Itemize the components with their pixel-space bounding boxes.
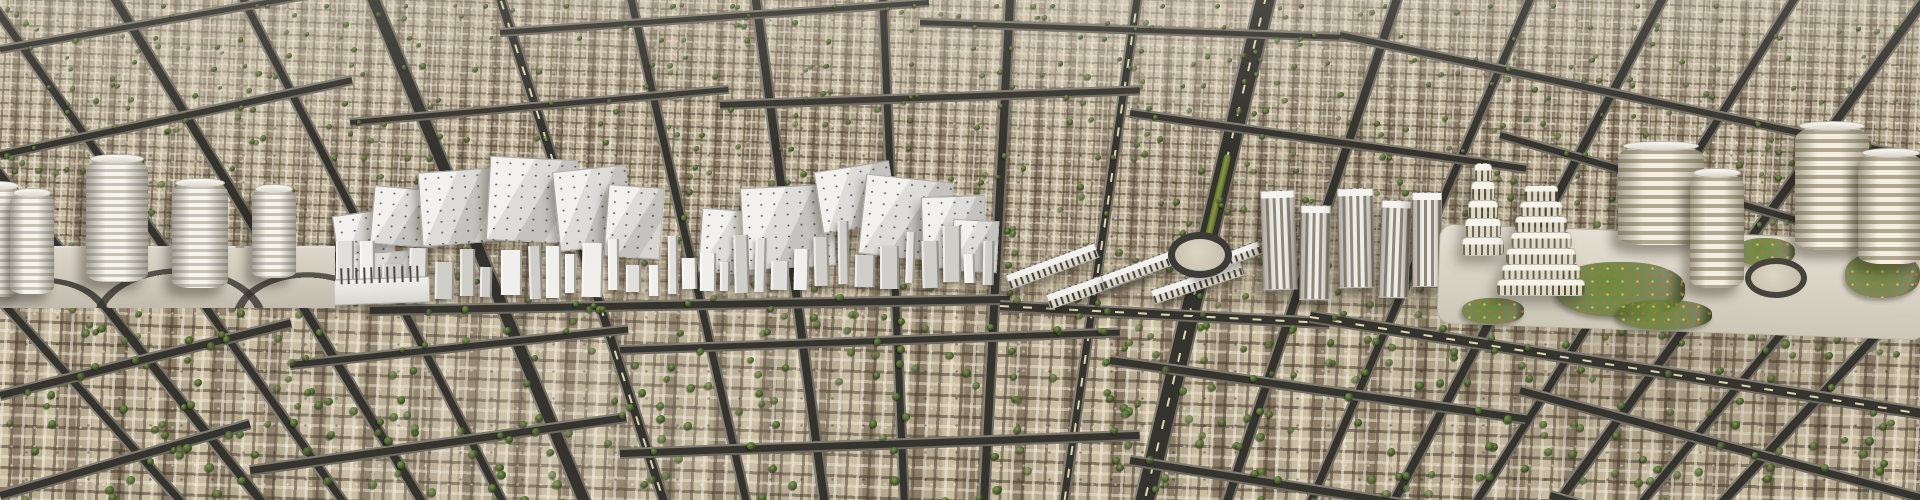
street-tree	[1506, 67, 1510, 71]
fabric-tree	[1790, 352, 1796, 358]
fabric-tree	[1292, 64, 1297, 69]
fabric-tree	[369, 138, 374, 143]
fabric-tree	[1774, 34, 1778, 38]
fabric-tree	[687, 384, 695, 392]
fabric-tree	[1541, 432, 1547, 438]
fabric-tree	[675, 455, 682, 462]
street-tree	[1002, 153, 1007, 158]
street-tree	[536, 414, 544, 422]
street-tree	[238, 310, 245, 317]
fabric-tree	[1533, 87, 1538, 92]
fabric-tree	[1375, 191, 1380, 196]
fabric-tree	[1667, 110, 1672, 115]
street-tree	[1828, 384, 1835, 391]
tower-slab-striped	[1260, 189, 1297, 290]
fabric-tree	[1150, 25, 1154, 29]
street-tree	[893, 393, 899, 399]
street-tree	[496, 464, 503, 471]
fabric-tree	[255, 4, 259, 8]
street-tree	[1881, 460, 1888, 467]
fabric-tree	[1036, 16, 1040, 20]
fabric-tree	[1410, 60, 1414, 64]
fabric-tree	[159, 421, 166, 428]
mall-fin	[922, 241, 940, 288]
fabric-tree	[1206, 54, 1210, 58]
mall-fin	[565, 254, 576, 293]
street-tree	[473, 67, 478, 72]
fabric-tree	[417, 43, 421, 47]
fabric-tree	[1208, 384, 1216, 392]
ziggurat-step	[1511, 232, 1572, 249]
street-tree	[92, 363, 99, 370]
street-tree	[1009, 348, 1016, 355]
fabric-tree	[1104, 389, 1111, 396]
street-tree	[13, 169, 18, 174]
street-tree	[1680, 60, 1685, 65]
street-tree	[1489, 4, 1493, 8]
mall-fin	[964, 254, 976, 283]
fabric-tree	[1079, 194, 1085, 200]
fabric-tree	[305, 389, 312, 396]
fabric-tree	[122, 337, 128, 343]
fabric-tree	[619, 412, 626, 419]
fabric-tree	[24, 21, 29, 26]
fabric-tree	[1265, 341, 1273, 349]
fabric-tree	[836, 294, 843, 301]
fabric-tree	[426, 309, 432, 315]
street-tree	[398, 396, 405, 403]
fabric-tree	[94, 98, 99, 103]
street-tree	[532, 355, 538, 361]
mall-fin	[720, 262, 730, 291]
fabric-tree	[389, 371, 397, 379]
fabric-tree	[286, 376, 292, 382]
fabric-tree	[847, 120, 851, 124]
mall-fin	[681, 258, 697, 289]
street-tree	[1140, 49, 1144, 53]
street-tree	[1866, 437, 1874, 445]
street-tree	[913, 4, 916, 7]
fabric-tree	[1490, 82, 1494, 86]
street-tree	[901, 284, 906, 289]
fabric-tree	[1162, 474, 1169, 481]
street-tree	[565, 4, 568, 7]
street-tree	[1375, 121, 1380, 126]
fabric-tree	[1236, 108, 1241, 113]
fabric-tree	[694, 146, 698, 150]
fabric-tree	[1050, 374, 1058, 382]
mall-fin	[501, 250, 522, 295]
fabric-tree	[357, 120, 361, 124]
fabric-tree	[1241, 206, 1247, 212]
fabric-tree	[113, 124, 118, 129]
fabric-tree	[1275, 38, 1280, 43]
fabric-tree	[65, 167, 70, 172]
fabric-tree	[1244, 414, 1251, 421]
street-tree	[1613, 432, 1620, 439]
street-tree	[898, 318, 905, 325]
street-tree	[870, 420, 877, 427]
fabric-tree	[983, 172, 988, 177]
fabric-tree	[1416, 382, 1424, 390]
street-tree	[651, 448, 658, 455]
fabric-tree	[1511, 178, 1517, 184]
street-tree	[768, 306, 774, 312]
ziggurat-step	[1465, 218, 1501, 237]
fabric-tree	[736, 5, 740, 9]
street-tree	[1095, 300, 1101, 306]
fabric-tree	[149, 210, 154, 215]
fabric-tree	[1492, 128, 1497, 133]
street-tree	[794, 113, 798, 117]
fabric-tree	[36, 168, 41, 173]
fabric-tree	[183, 444, 192, 453]
fabric-tree	[900, 10, 904, 14]
fabric-tree	[183, 118, 189, 124]
fabric-tree	[1145, 132, 1150, 137]
fabric-tree	[1275, 81, 1280, 86]
fabric-tree	[15, 12, 19, 16]
fabric-tree	[1202, 83, 1206, 87]
fabric-tree	[1135, 400, 1141, 406]
fabric-tree	[1009, 46, 1014, 51]
fabric-tree	[420, 63, 425, 68]
fabric-tree	[1365, 336, 1372, 343]
street-tree	[1336, 289, 1342, 295]
street-tree	[1787, 56, 1791, 60]
street-tree	[1328, 339, 1334, 345]
fabric-tree	[1085, 74, 1090, 79]
fabric-tree	[1118, 57, 1122, 61]
fabric-tree	[1447, 146, 1451, 150]
street-tree	[397, 461, 405, 469]
mall-fin	[793, 249, 809, 290]
tower-roof-cap	[13, 188, 52, 198]
fabric-tree	[1373, 338, 1380, 345]
fabric-tree	[352, 47, 357, 52]
fabric-tree	[1667, 409, 1673, 415]
fabric-tree	[1325, 359, 1333, 367]
mall-fin	[700, 252, 716, 290]
street-tree	[325, 4, 329, 8]
fabric-tree	[1236, 443, 1243, 450]
fabric-tree	[623, 25, 628, 30]
fabric-tree	[1367, 301, 1374, 308]
fabric-tree	[504, 327, 511, 334]
fabric-tree	[1756, 122, 1760, 126]
fabric-tree	[872, 351, 879, 358]
fabric-tree	[1254, 72, 1259, 77]
fabric-tree	[1456, 71, 1460, 75]
fabric-tree	[469, 450, 477, 458]
fabric-tree	[1862, 55, 1866, 59]
street-tree	[1547, 96, 1551, 100]
fabric-tree	[1031, 4, 1036, 9]
street-tree	[897, 346, 904, 353]
fabric-tree	[1455, 10, 1460, 15]
fabric-tree	[156, 44, 161, 49]
street-tree	[979, 180, 984, 185]
fabric-tree	[1104, 308, 1111, 315]
fabric-tree	[1241, 53, 1246, 58]
tower-cylindrical-white	[252, 188, 296, 278]
mall-fin	[943, 226, 961, 282]
fabric-tree	[1370, 10, 1375, 15]
ziggurat-step	[1468, 200, 1498, 219]
street-tree	[564, 328, 570, 334]
fabric-tree	[350, 407, 358, 415]
street-tree	[1312, 33, 1316, 37]
fabric-tree	[219, 331, 225, 337]
fabric-tree	[1352, 376, 1359, 383]
mall-fin	[582, 243, 604, 297]
mall-fin	[649, 265, 660, 296]
fabric-tree	[781, 313, 787, 319]
street-tree	[687, 189, 693, 195]
fabric-tree	[1504, 415, 1512, 423]
fabric-tree	[187, 46, 190, 49]
street-tree	[106, 486, 114, 494]
fabric-tree	[658, 435, 665, 442]
mall-fin	[733, 235, 749, 294]
fabric-tree	[902, 413, 910, 421]
fabric-tree	[1368, 475, 1377, 484]
street-tree	[657, 415, 664, 422]
fabric-tree	[71, 86, 76, 91]
tower-roof-cap	[1862, 148, 1920, 158]
fabric-tree	[129, 97, 134, 102]
mall-fin	[770, 261, 789, 291]
fabric-tree	[882, 314, 888, 320]
street-tree	[1618, 402, 1625, 409]
fabric-tree	[1258, 496, 1265, 500]
street-tree	[1388, 448, 1395, 455]
street-tree	[991, 453, 998, 460]
street-tree	[908, 118, 913, 123]
fabric-tree	[1415, 311, 1422, 318]
fabric-tree	[1651, 42, 1655, 46]
fabric-tree	[1640, 456, 1647, 463]
street-tree	[891, 477, 899, 485]
street-tree	[1475, 407, 1482, 414]
fabric-tree	[1476, 474, 1484, 482]
fabric-tree	[1011, 85, 1015, 89]
fabric-tree	[1228, 58, 1232, 62]
street-tree	[1355, 419, 1361, 425]
fabric-tree	[682, 38, 686, 42]
street-tree	[290, 419, 297, 426]
fabric-tree	[127, 476, 135, 484]
fabric-tree	[599, 121, 604, 126]
tower-cylindrical-cream	[1690, 172, 1744, 288]
fabric-tree	[1012, 250, 1018, 256]
fabric-tree	[874, 338, 881, 345]
fabric-tree	[814, 321, 821, 328]
street-tree	[1096, 155, 1101, 160]
fabric-tree	[605, 440, 612, 447]
street-tree	[1008, 290, 1013, 295]
fabric-tree	[136, 311, 142, 317]
fabric-tree	[1875, 29, 1880, 34]
street-tree	[49, 420, 56, 427]
fabric-tree	[1122, 410, 1130, 418]
fabric-tree	[1451, 348, 1458, 355]
street-tree	[1443, 116, 1448, 121]
fabric-tree	[1159, 201, 1164, 206]
fabric-tree	[1659, 332, 1666, 339]
fabric-tree	[497, 471, 505, 479]
fabric-tree	[520, 421, 527, 428]
street-tree	[909, 95, 913, 99]
street-tree	[1654, 466, 1662, 474]
tower-ziggurat	[1497, 185, 1585, 295]
street-tree	[162, 432, 169, 439]
fabric-tree	[1014, 396, 1022, 404]
fabric-tree	[463, 337, 470, 344]
fabric-tree	[213, 490, 221, 498]
fabric-tree	[205, 463, 214, 472]
street-tree	[1107, 395, 1113, 401]
street-tree	[1051, 4, 1055, 8]
street-tree	[973, 25, 977, 29]
fabric-tree	[1126, 339, 1133, 346]
fabric-tree	[158, 181, 164, 187]
street-tree	[1014, 426, 1021, 433]
fabric-tree	[1245, 162, 1249, 166]
tower-slab-striped	[1299, 205, 1331, 301]
street-tree	[48, 391, 56, 399]
street-tree	[1776, 175, 1782, 181]
fabric-tree	[1258, 58, 1262, 62]
fabric-tree	[1219, 203, 1224, 208]
fabric-tree	[1258, 468, 1266, 476]
mall-fin	[626, 265, 641, 292]
street-tree	[1174, 199, 1180, 205]
fabric-tree	[25, 389, 31, 395]
fabric-tree	[1894, 351, 1900, 357]
street-tree	[604, 140, 609, 145]
tower-slab-striped	[1337, 188, 1375, 289]
fabric-tree	[144, 363, 150, 369]
fabric-tree	[1186, 415, 1193, 422]
fabric-tree	[779, 147, 783, 151]
fabric-tree	[186, 337, 193, 344]
ziggurat-step	[1502, 264, 1581, 281]
street-tree	[193, 93, 198, 98]
fabric-tree	[1282, 98, 1287, 103]
fabric-tree	[549, 471, 556, 478]
fabric-tree	[688, 174, 693, 179]
fabric-tree	[400, 347, 406, 353]
street-tree	[1253, 50, 1257, 54]
fabric-tree	[759, 494, 766, 500]
ziggurat-step	[1524, 185, 1558, 202]
fabric-tree	[82, 329, 89, 336]
fabric-tree	[344, 22, 349, 27]
fabric-tree	[1284, 15, 1288, 19]
fabric-tree	[237, 431, 244, 438]
fabric-tree	[187, 401, 195, 409]
street-tree	[1764, 475, 1772, 483]
fabric-tree	[1144, 20, 1149, 25]
street-tree	[1777, 150, 1782, 155]
tower-cylindrical-white	[10, 192, 54, 294]
fabric-tree	[1106, 21, 1110, 25]
mall-plaza-deck	[328, 276, 431, 306]
fabric-tree	[946, 352, 953, 359]
street-tree	[824, 64, 828, 68]
street-tree	[474, 279, 479, 284]
fabric-tree	[1527, 375, 1533, 381]
fabric-tree	[886, 7, 890, 11]
street-tree	[639, 389, 646, 396]
fabric-tree	[1524, 117, 1529, 122]
fabric-tree	[848, 349, 855, 356]
fabric-tree	[675, 132, 680, 137]
fabric-tree	[1612, 470, 1619, 477]
fabric-tree	[915, 93, 920, 98]
fabric-tree	[812, 286, 818, 292]
fabric-tree	[132, 357, 139, 364]
mall-fin	[838, 221, 850, 285]
tower-slab-striped	[1378, 200, 1411, 299]
fabric-tree	[1162, 366, 1170, 374]
fabric-tree	[1766, 144, 1772, 150]
street-tree	[1197, 293, 1203, 299]
ziggurat-step	[1506, 248, 1576, 265]
fabric-tree	[976, 494, 983, 500]
fabric-tree	[1594, 221, 1601, 228]
fabric-tree	[570, 318, 577, 325]
fabric-tree	[1647, 477, 1655, 485]
fabric-tree	[66, 102, 70, 106]
fabric-tree	[1770, 219, 1776, 225]
fabric-tree	[1475, 57, 1479, 61]
fabric-tree	[1429, 471, 1436, 478]
fabric-tree	[804, 96, 808, 100]
fabric-tree	[1199, 432, 1206, 439]
fabric-tree	[29, 46, 33, 50]
street-tree	[1104, 211, 1109, 216]
street-tree	[427, 156, 432, 161]
fabric-tree	[1820, 100, 1824, 104]
mall-fin	[880, 246, 899, 289]
ziggurat-step	[1520, 201, 1563, 218]
fabric-tree	[384, 437, 392, 445]
street-tree	[681, 215, 686, 220]
fabric-tree	[811, 314, 818, 321]
street-tree	[713, 74, 718, 79]
mall-fin	[905, 232, 916, 283]
street-tree	[833, 4, 837, 8]
street-tree	[1158, 136, 1163, 141]
street-tree	[1737, 398, 1743, 404]
fabric-tree	[1895, 25, 1900, 30]
fabric-tree	[460, 14, 464, 18]
fabric-tree	[829, 89, 833, 93]
tower-roof-cap	[175, 178, 224, 188]
fabric-tree	[511, 8, 515, 12]
fabric-tree	[261, 135, 266, 140]
street-tree	[1064, 95, 1069, 100]
street-tree	[1732, 421, 1740, 429]
street-tree	[361, 72, 365, 76]
street-tree	[1256, 408, 1263, 415]
fabric-tree	[553, 480, 561, 488]
fabric-tree	[1132, 66, 1137, 71]
tower-roof-cap	[1799, 121, 1864, 131]
street-tree	[1134, 27, 1137, 30]
